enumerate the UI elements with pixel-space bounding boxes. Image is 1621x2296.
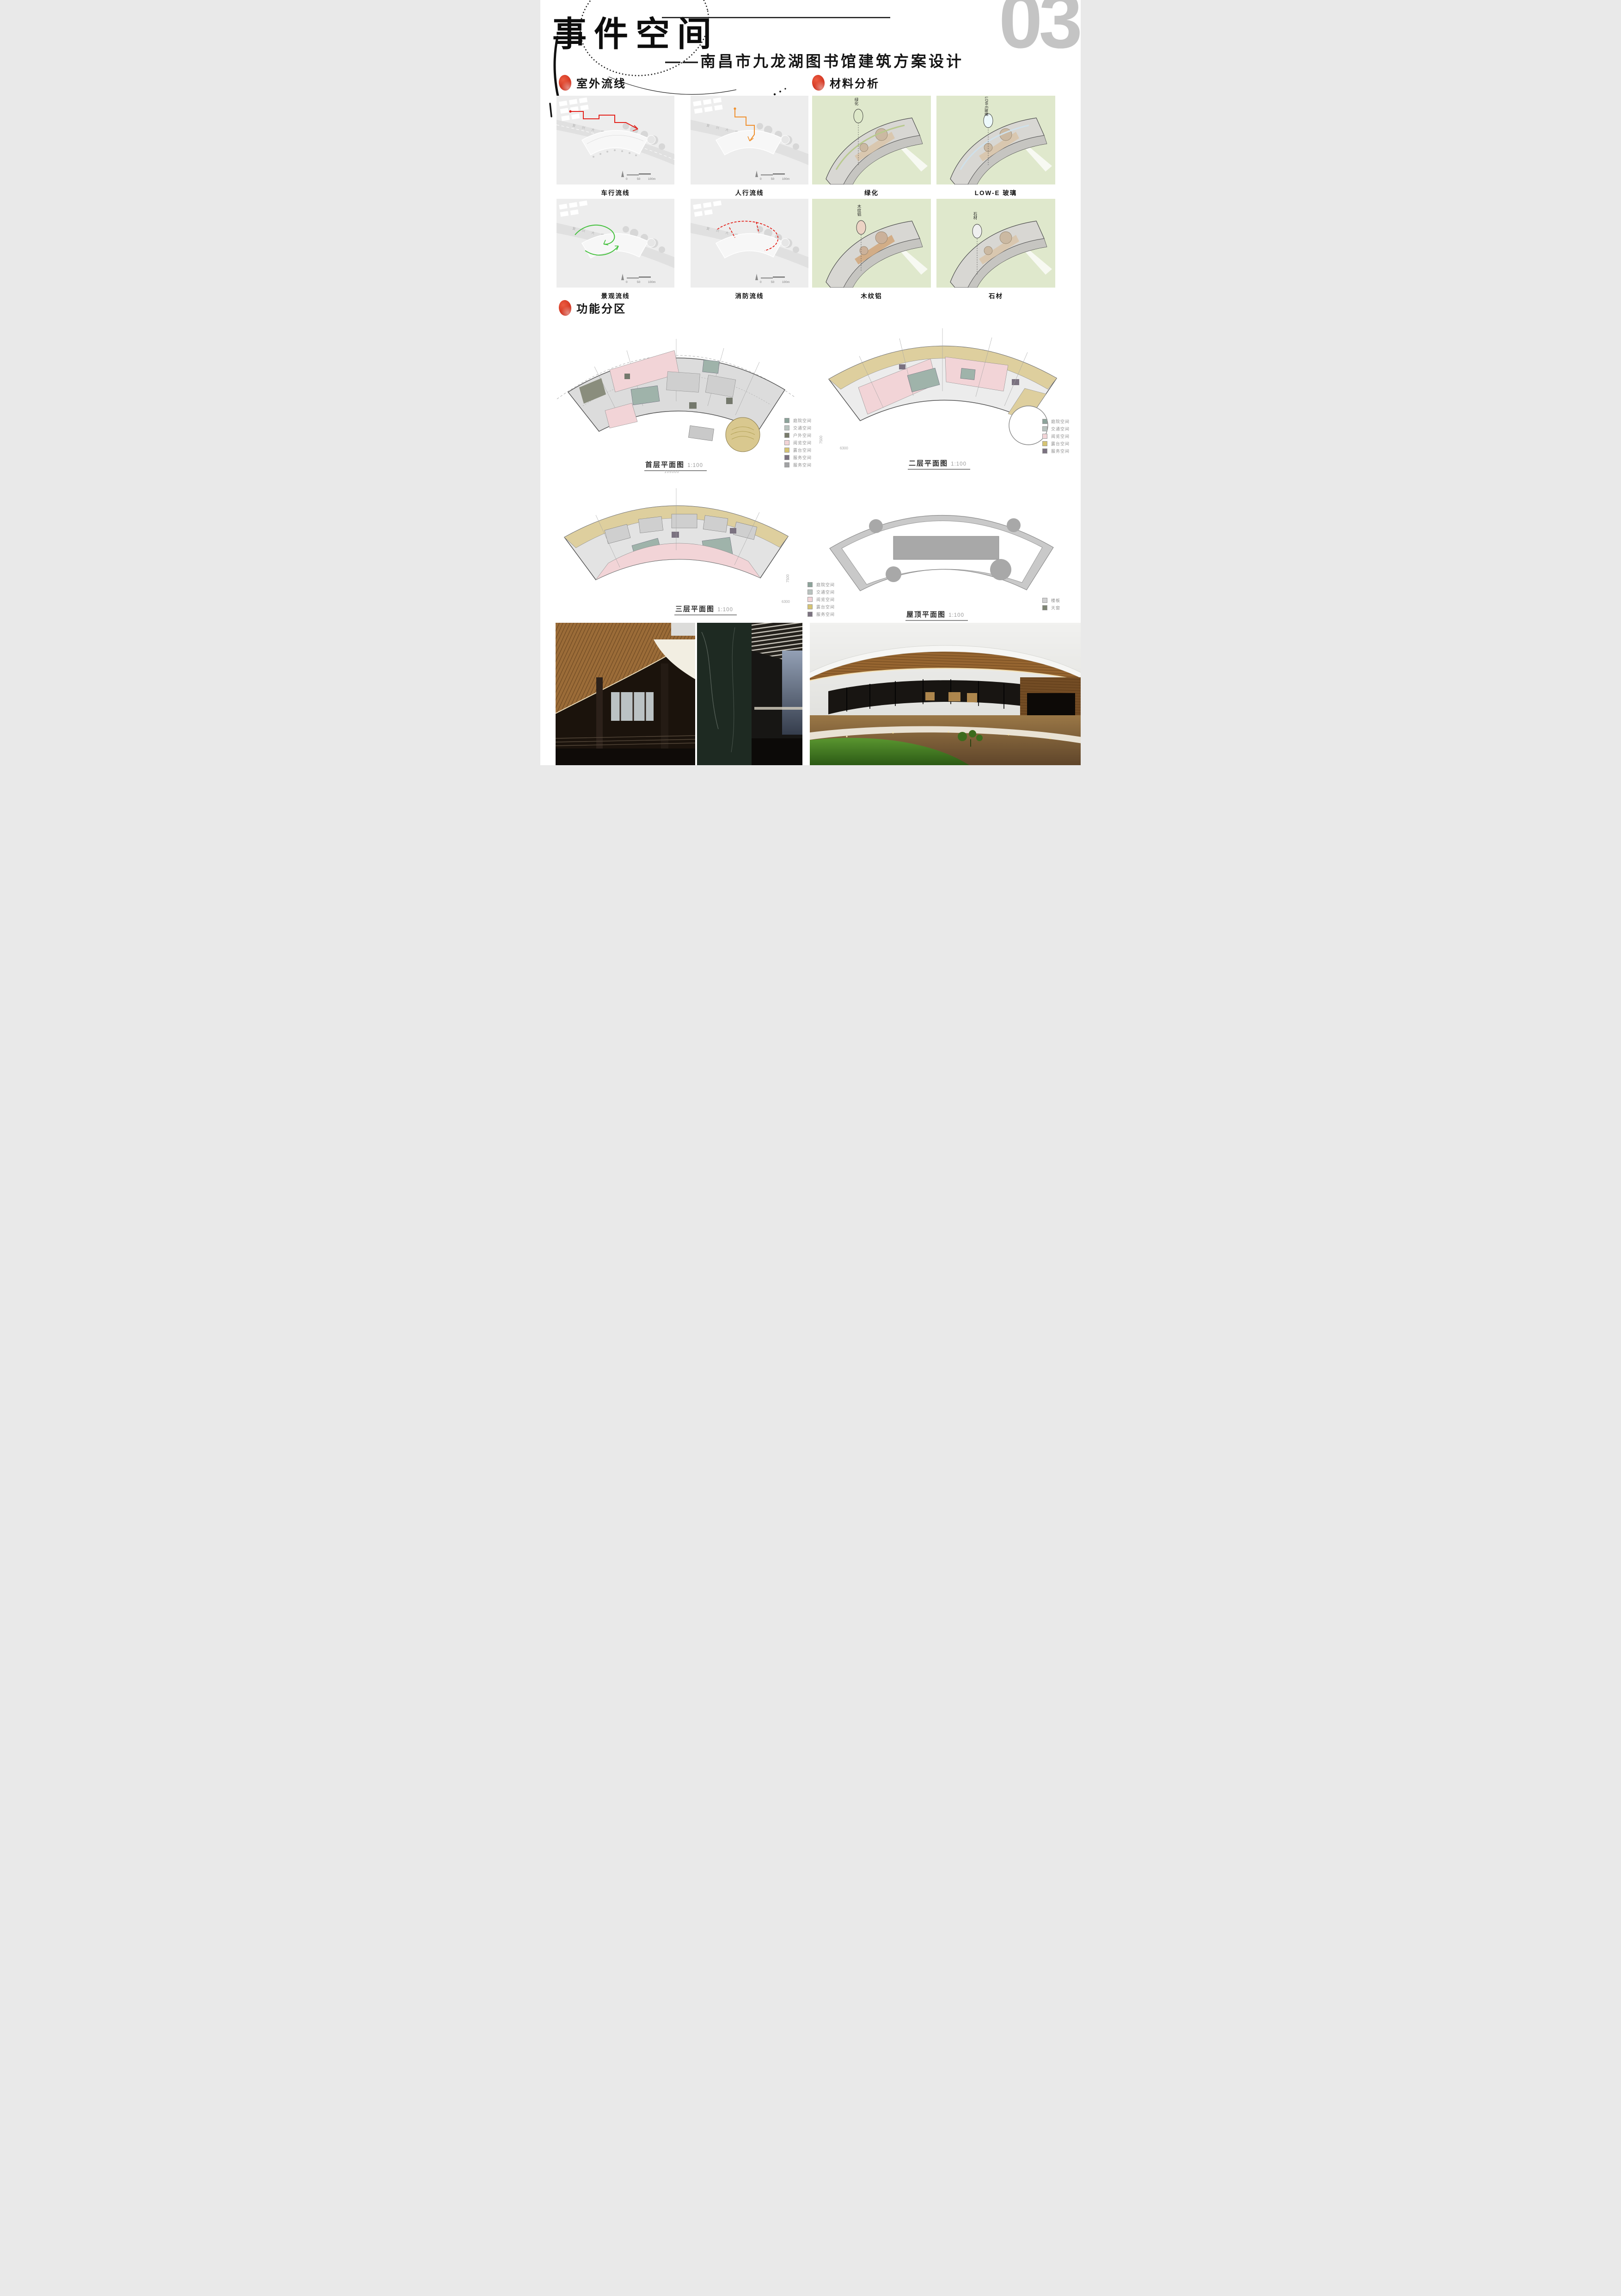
svg-text:0: 0 (626, 178, 628, 181)
svg-text:100m: 100m (648, 178, 655, 181)
siteplan-caption: 人行流线 (691, 188, 808, 197)
legend-swatch (1042, 419, 1047, 424)
svg-text:50: 50 (771, 281, 775, 284)
material-caption: 木纹铝 (812, 291, 931, 300)
siteplan-caption: 景观流线 (557, 291, 674, 300)
presentation-board: 03 事件空间 ——南昌市九龙湖图书馆建筑方案设计 室外流线 材料分析 功能分区 (540, 0, 1081, 765)
plan-caption-level2: 二层平面图 1:100 (908, 458, 970, 470)
svg-text:木纹铝: 木纹铝 (857, 204, 862, 216)
plan-caption-roof: 屋顶平面图 1:100 (905, 609, 968, 621)
material-panel-stone: 石材 石材 (936, 199, 1055, 300)
legend-label: 交通空间 (1051, 426, 1070, 432)
legend-swatch (784, 455, 789, 460)
svg-text:0: 0 (760, 281, 762, 284)
plan-caption-level3: 三层平面图 1:100 (674, 604, 737, 615)
svg-text:7500: 7500 (786, 574, 790, 583)
legend-label: 阅览空间 (1051, 433, 1070, 439)
material-axon: LOW-E玻璃 (936, 96, 1055, 184)
legend-label: 服务空间 (793, 462, 812, 468)
section-heading: 材料分析 (830, 74, 880, 91)
siteplan-caption: 车行流线 (557, 188, 674, 197)
legend-label: 庭院空间 (793, 417, 812, 424)
legend-swatch (1042, 598, 1047, 603)
legend-roof: 楼板 天窗 (1042, 597, 1060, 611)
material-axon: 绿化 (812, 96, 931, 184)
svg-text:石材: 石材 (973, 212, 978, 220)
siteplan-fire: 复兴大道西 0 50 100m 消防流线 (691, 199, 808, 300)
legend-swatch (807, 604, 813, 609)
svg-text:50: 50 (637, 178, 641, 181)
legend-swatch (784, 418, 789, 423)
siteplan-map: 复兴大道西 0 50 100m (691, 199, 808, 288)
material-panel-wood-aluminium: 木纹铝 木纹铝 (812, 199, 931, 300)
plan-dim-105000: 105000 (664, 470, 679, 474)
legend-swatch (1042, 434, 1047, 439)
legend-label: 楼板 (1051, 597, 1060, 603)
svg-text:100m: 100m (782, 281, 789, 284)
legend-label: 服务空间 (816, 611, 835, 617)
svg-text:7500: 7500 (819, 436, 823, 444)
svg-text:0: 0 (760, 178, 762, 181)
svg-text:50: 50 (771, 178, 775, 181)
siteplan-pedestrian: 复兴大道西 0 50 100m 人行流线 (691, 96, 808, 197)
legend-label: 服务空间 (1051, 448, 1070, 454)
board-subtitle: ——南昌市九龙湖图书馆建筑方案设计 (665, 49, 964, 71)
svg-text:绿化: 绿化 (854, 97, 859, 106)
legend-label: 交通空间 (816, 589, 835, 595)
floorplan-roof (816, 479, 1069, 610)
siteplan-vehicle: 复兴大道西 0 50 100m (557, 96, 674, 197)
legend-label: 庭院空间 (1051, 418, 1070, 424)
legend-label: 露台空间 (816, 604, 835, 610)
svg-text:6300: 6300 (840, 446, 848, 450)
floorplan-level2: 7500 6300 (814, 310, 1073, 462)
svg-text:50: 50 (637, 281, 641, 284)
legend-swatch (784, 425, 789, 430)
legend-swatch (1042, 426, 1047, 431)
svg-text:LOW-E玻璃: LOW-E玻璃 (985, 97, 989, 117)
legend-swatch (784, 440, 789, 445)
svg-text:100m: 100m (648, 281, 655, 284)
material-caption: 绿化 (812, 188, 931, 197)
floorplan-level1 (551, 318, 802, 464)
material-axon: 石材 (936, 199, 1055, 288)
material-axon: 木纹铝 (812, 199, 931, 288)
legend-level2: 庭院空间 交通空间 阅览空间 露台空间 服务空间 (1042, 418, 1070, 454)
siteplan-map: 复兴大道西 0 50 100m (557, 199, 674, 288)
svg-text:0: 0 (626, 281, 628, 284)
legend-label: 户外空间 (793, 432, 812, 438)
board-title: 事件空间 (552, 6, 719, 56)
legend-swatch (807, 589, 813, 595)
siteplan-map: 复兴大道西 0 50 100m (557, 96, 674, 184)
legend-swatch (1042, 448, 1047, 454)
material-caption: 石材 (936, 291, 1055, 300)
red-stamp-icon (558, 299, 572, 316)
section-functional-zoning: 功能分区 (559, 300, 626, 316)
legend-swatch (784, 433, 789, 438)
material-caption: LOW-E 玻璃 (936, 188, 1055, 197)
legend-label: 庭院空间 (816, 582, 835, 588)
interior-render (556, 623, 802, 765)
legend-swatch (1042, 441, 1047, 446)
legend-swatch (1042, 605, 1047, 610)
legend-swatch (807, 612, 813, 617)
legend-label: 天窗 (1051, 605, 1060, 611)
page-number: 03 (999, 0, 1079, 60)
legend-swatch (807, 597, 813, 602)
legend-swatch (784, 462, 789, 467)
svg-text:6300: 6300 (782, 600, 790, 604)
siteplan-caption: 消防流线 (691, 291, 808, 300)
legend-label: 阅览空间 (793, 440, 812, 446)
section-heading: 功能分区 (576, 300, 626, 316)
legend-label: 露台空间 (1051, 441, 1070, 447)
legend-swatch (807, 582, 813, 587)
legend-label: 交通空间 (793, 425, 812, 431)
red-stamp-icon (558, 74, 572, 91)
siteplan-landscape: 复兴大道西 0 50 100m 景观流线 (557, 199, 674, 300)
siteplan-map: 复兴大道西 0 50 100m (691, 96, 808, 184)
legend-label: 阅览空间 (816, 596, 835, 602)
legend-swatch (784, 448, 789, 453)
legend-level1: 庭院空间 交通空间 户外空间 阅览空间 露台空间 服务空间 服务空间 (784, 417, 812, 468)
material-panel-greening: 绿化 绿化 (812, 96, 931, 197)
material-panel-lowe-glass: LOW-E玻璃 LOW-E 玻璃 (936, 96, 1055, 197)
legend-label: 服务空间 (793, 454, 812, 460)
section-heading: 室外流线 (576, 74, 626, 91)
exterior-render (810, 623, 1081, 765)
red-stamp-icon (811, 74, 826, 91)
floorplan-level3: 7500 6300 (551, 473, 802, 612)
legend-level3: 庭院空间 交通空间 阅览空间 露台空间 服务空间 (807, 582, 835, 617)
section-material-analysis: 材料分析 (812, 74, 880, 91)
svg-text:100m: 100m (782, 178, 789, 181)
legend-label: 露台空间 (793, 447, 812, 453)
section-outdoor-circulation: 室外流线 (559, 74, 626, 91)
